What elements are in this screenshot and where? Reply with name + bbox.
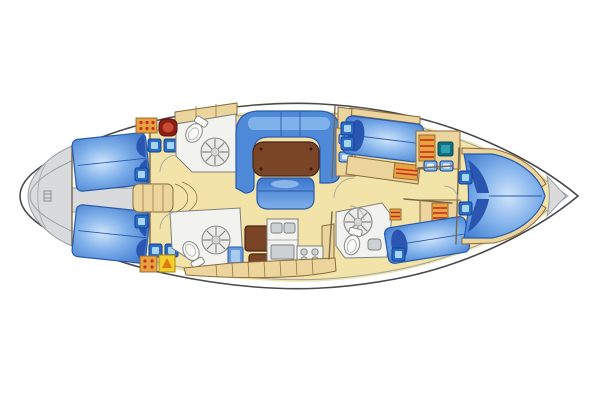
slatted-cushion (393, 163, 418, 180)
cabin-hatch-icon (392, 248, 405, 261)
galley-sink-unit (267, 219, 298, 263)
aft-berth-bottom (71, 204, 150, 263)
shower-icon (202, 226, 230, 254)
forward-head: forward head with shower (336, 203, 392, 258)
deck-hatch-icon (148, 139, 161, 152)
deck-hatch-icon (164, 139, 177, 152)
shower-icon (201, 138, 229, 166)
locker-door-icon (424, 161, 437, 171)
warning-box-yellow (159, 255, 175, 272)
fridge-front (271, 245, 294, 259)
sink-basin (284, 223, 295, 233)
aft-cabin-port: aft double cabin (port) with berth (71, 204, 150, 263)
cabin-hatch-icon (135, 168, 148, 181)
washbasin-red (159, 119, 177, 136)
slatted-locker (419, 135, 435, 161)
deck-plan-canvas: hull outline stern transom deck aft comp… (0, 0, 600, 400)
sink-teal (438, 142, 453, 156)
washbasin (368, 239, 381, 250)
forward-dresser-top (416, 131, 460, 171)
sink-basin (271, 223, 282, 233)
stern-deck: stern transom deck (28, 146, 72, 246)
slatted-locker-small (390, 209, 401, 220)
saloon-stool: movable saloon seat (257, 178, 314, 209)
aft-berth-top (71, 132, 150, 191)
settee-cushion-highlight (248, 117, 330, 130)
deck-hatch-icon (459, 171, 472, 184)
deck-hatch-icon (459, 202, 472, 215)
stool-highlight (271, 180, 299, 188)
bottle-locker-bottom (140, 256, 157, 272)
chart-table (245, 226, 270, 251)
aft-cabin-starboard: aft double cabin (starboard) with berth (71, 132, 150, 191)
cabin-hatch-icon (341, 137, 354, 150)
cabin-hatch-icon (341, 122, 354, 135)
forward-cabin-starboard: forward guest cabin berth (338, 107, 424, 184)
cabin-hatch-icon (135, 215, 148, 228)
yacht-deck-plan: hull outline stern transom deck aft comp… (0, 0, 600, 400)
saloon-table: saloon table (253, 142, 319, 176)
bottle-locker-top (136, 118, 157, 133)
